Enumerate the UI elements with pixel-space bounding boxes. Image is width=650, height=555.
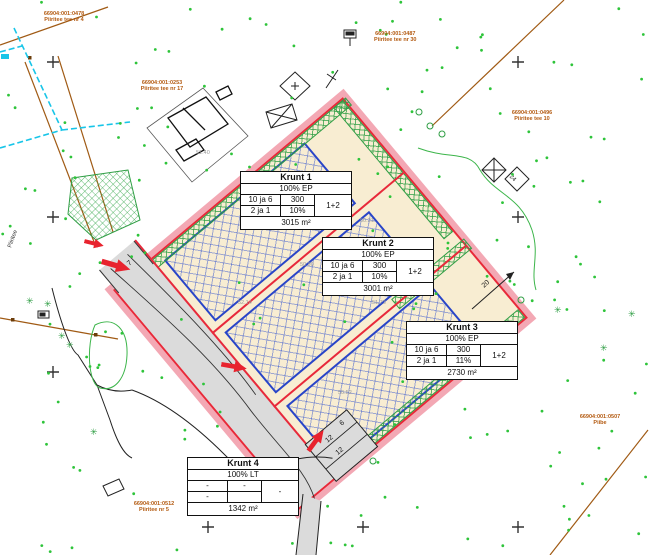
spot-height-label: 50.52: [338, 390, 352, 396]
plot-name: Krunt 3: [407, 322, 517, 334]
plot-cell: 2 ja 1: [407, 356, 447, 366]
cadastral-label: 66904:001:0478Piiritee tee nr 4: [44, 11, 84, 23]
spot-height-label: 50.31: [360, 218, 374, 224]
plot-info-box-3: Krunt 3 100% EP 10 ja 6 300 2 ja 1 11% 1…: [406, 321, 518, 380]
plot-cell: 10 ja 6: [407, 345, 447, 356]
spot-height-label: 50.90: [300, 262, 314, 268]
building-icon: [266, 104, 297, 128]
plot-cell: 300: [447, 345, 481, 356]
bus-stop-icon: [38, 311, 49, 318]
plot-cell: -: [228, 481, 262, 492]
farmstead-boundary: [147, 88, 248, 182]
cadastral-label: 66904:001:0253Piiritee tee nr 17: [141, 80, 184, 92]
conifer-icon: ✳: [554, 306, 562, 315]
cadastral-label: 66904:001:0512Piiritee nr 5: [134, 501, 174, 513]
plot-cell: 300: [363, 261, 397, 272]
plot-area: 3015 m²: [241, 216, 351, 229]
conifer-icon: ✳: [628, 310, 636, 319]
plot-storeys: -: [262, 481, 298, 502]
plot-storeys: 1+2: [481, 345, 517, 366]
vehicle-icon: [103, 479, 124, 496]
culvert-icon: [1, 54, 9, 59]
spot-height-label: 52.14: [238, 300, 252, 306]
plot-cell: 10%: [363, 272, 397, 282]
plot-use: 100% LT: [188, 470, 298, 481]
planning-area-boundary: 12 12 6 7: [113, 97, 528, 510]
cadastral-label: 66904:001:0496Piiritee tee 10: [512, 110, 552, 122]
existing-house-icon: [505, 167, 529, 191]
plot-cell: 10 ja 6: [323, 261, 363, 272]
plot-storeys: 1+2: [397, 261, 433, 282]
plot-cell: 2 ja 1: [323, 272, 363, 282]
conifer-icon: ✳: [58, 332, 66, 341]
plot-info-box-2: Krunt 2 100% EP 10 ja 6 300 2 ja 1 10% 1…: [322, 237, 434, 296]
plot-area: 3001 m²: [323, 282, 433, 295]
plot-info-box-4: Krunt 4 100% LT - - - - 1342 m²: [187, 457, 299, 516]
survey-point-icon: [280, 72, 310, 100]
plot-use: 100% EP: [407, 334, 517, 345]
road-name-label: Piiritee: [7, 229, 19, 248]
access-arrow-icon: [83, 236, 105, 252]
house-number-label: 24: [508, 174, 517, 183]
spot-height-label: 51.40: [196, 150, 210, 156]
spot-height-label: 51.73: [372, 300, 386, 306]
existing-track-line: [127, 248, 256, 400]
plot-cell: 10%: [281, 206, 315, 216]
plot-cell: [228, 492, 262, 502]
plot-cell: 10 ja 6: [241, 195, 281, 206]
conifer-icon: ✳: [44, 300, 52, 309]
plot-cell: 2 ja 1: [241, 206, 281, 216]
plot-cell: -: [188, 481, 228, 492]
plan-drawing-canvas: 12 12 6 7: [0, 0, 650, 555]
plot-storeys: 1+2: [315, 195, 351, 216]
ditch-lines: [0, 28, 130, 148]
conifer-icon: ✳: [600, 344, 608, 353]
power-pole-icon: [326, 70, 338, 88]
conifer-icon: ✳: [66, 341, 74, 350]
utility-box-icon: [482, 158, 506, 182]
cadastral-label: 66904:001:0487Piiritee tee nr 30: [374, 31, 417, 43]
cadastral-label: 66904:001:0507Piibe: [580, 414, 620, 426]
plot-name: Krunt 1: [241, 172, 351, 184]
road-detail-linework: 12 12 6 7: [116, 97, 531, 510]
conifer-icon: ✳: [26, 297, 34, 306]
plot-cell: 11%: [447, 356, 481, 366]
vegetation-patch: [68, 170, 140, 240]
boundary-markers: [11, 56, 98, 337]
plot-area: 1342 m²: [188, 502, 298, 515]
plot-cell: 300: [281, 195, 315, 206]
conifer-icon: ✳: [90, 428, 98, 437]
plot-name: Krunt 4: [188, 458, 298, 470]
plot-use: 100% EP: [241, 184, 351, 195]
plot-area: 2730 m²: [407, 366, 517, 379]
plot-info-box-1: Krunt 1 100% EP 10 ja 6 300 2 ja 1 10% 1…: [240, 171, 352, 230]
plot-use: 100% EP: [323, 250, 433, 261]
plot-name: Krunt 2: [323, 238, 433, 250]
sign-icon: [344, 30, 356, 46]
plot-cell: -: [188, 492, 228, 502]
